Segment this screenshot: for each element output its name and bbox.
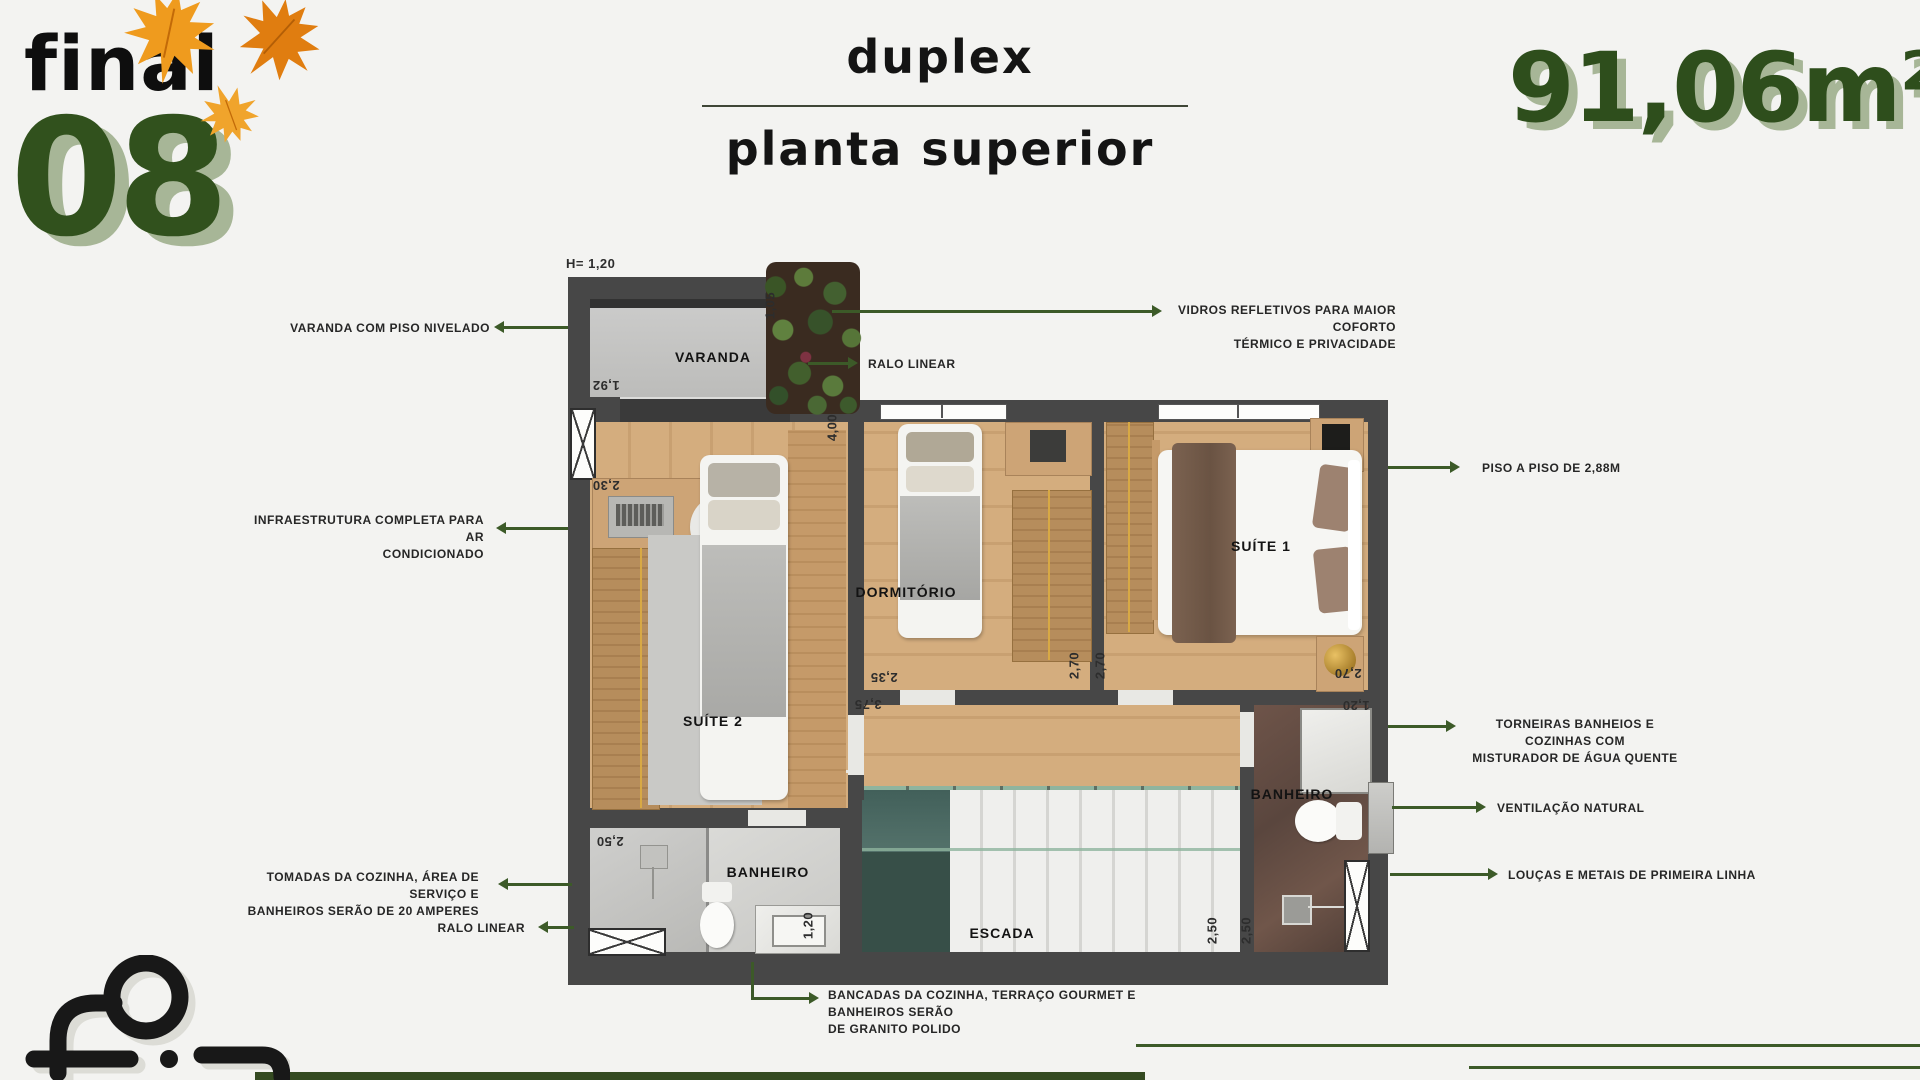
callout-arrow-line [808, 362, 850, 365]
arrow-left-icon [496, 522, 506, 534]
suite2-door-opening [848, 715, 864, 775]
bed-pillow [708, 500, 780, 530]
suite1-door-opening [1118, 690, 1173, 705]
callout-tomadas-line2: BANHEIROS SERÃO DE 20 AMPERES [248, 904, 479, 918]
poster-canvas: final 08 duplex planta superior 91,06m² … [0, 0, 1920, 1080]
dim-dorm-depth: 2,70 [1067, 646, 1082, 686]
wardrobe-rail [1048, 490, 1050, 660]
wardrobe-rail [1128, 422, 1130, 632]
room-label-dormitorio: DORMITÓRIO [850, 584, 962, 600]
callout-bancadas-line2: DE GRANITO POLIDO [828, 1022, 961, 1036]
callout-infra-line1: INFRAESTRUTURA COMPLETA PARA AR [254, 513, 484, 544]
bed-pillow-edge [1348, 460, 1360, 630]
banheiro1-door-opening [748, 810, 806, 826]
arrow-right-icon [1450, 461, 1460, 473]
banheiro2-shower-niche [1300, 708, 1372, 794]
laptop-icon [1030, 430, 1066, 462]
footer-rule-bottom [1469, 1066, 1920, 1069]
suite2-window [570, 408, 596, 480]
callout-arrow-line [502, 326, 568, 329]
dormitorio-door-opening [900, 690, 955, 705]
stairs-balustrade [862, 786, 1240, 790]
toilet-icon [700, 902, 734, 948]
callout-ralo-top: RALO LINEAR [868, 356, 998, 373]
room-label-escada: ESCADA [952, 925, 1052, 941]
callout-piso-a-piso: PISO A PISO DE 2,88M [1482, 460, 1762, 477]
arrow-left-icon [538, 921, 548, 933]
callout-arrow-line [1390, 873, 1490, 876]
toilet-tank [702, 882, 732, 902]
ventilation-shaft [1368, 782, 1394, 854]
sink-basin-icon [772, 915, 826, 947]
dim-banheiro1-depth: 1,20 [801, 906, 816, 946]
callout-arrow-line [751, 997, 811, 1000]
callout-tomadas: TOMADAS DA COZINHA, ÁREA DE SERVIÇO E BA… [235, 869, 479, 920]
dim-suite2-width: 2,30 [586, 478, 626, 493]
dim-suite2-length: 4,00 [825, 408, 840, 448]
dim-varanda-depth: 1,05 [763, 286, 778, 326]
planter-foliage [760, 258, 864, 418]
room-label-suite1: SUÍTE 1 [1208, 538, 1314, 554]
dormitorio-wardrobe [1012, 490, 1092, 662]
page-title: duplex [700, 30, 1180, 84]
callout-connector-vertical [751, 962, 754, 1000]
callout-arrow-line [504, 527, 568, 530]
dim-dormitorio-width: 2,35 [864, 670, 904, 685]
footer-rule-top [1136, 1044, 1920, 1047]
callout-infra-line2: CONDICIONADO [383, 547, 484, 561]
arrow-left-icon [498, 878, 508, 890]
arrow-right-icon [1488, 868, 1498, 880]
hall-floor [848, 705, 1240, 790]
arrow-right-icon [1152, 305, 1162, 317]
room-label-banheiro2: BANHEIRO [1236, 786, 1348, 802]
suite2-side-panel [788, 430, 846, 808]
toilet-icon [1295, 800, 1341, 842]
callout-arrow-line [1392, 806, 1478, 809]
arrow-right-icon [1476, 801, 1486, 813]
brand-logo-icon [18, 955, 290, 1080]
banheiro2-window [1344, 860, 1370, 952]
callout-vidros-line2: TÉRMICO E PRIVACIDADE [1234, 337, 1396, 351]
callout-vidros: VIDROS REFLETIVOS PARA MAIOR COFORTO TÉR… [1166, 302, 1396, 353]
banheiro1-window [588, 928, 666, 956]
footer-bar [255, 1072, 1145, 1080]
callout-arrow-line [832, 310, 1154, 313]
callout-vidros-line1: VIDROS REFLETIVOS PARA MAIOR COFORTO [1178, 303, 1396, 334]
bed-pillow [906, 466, 974, 492]
toilet-tank [1336, 802, 1362, 840]
callout-arrow-line [1388, 725, 1448, 728]
suite1-window [1158, 404, 1320, 420]
shower-head-icon [640, 845, 668, 869]
callout-arrow-line [1388, 466, 1452, 469]
callout-bancadas: BANCADAS DA COZINHA, TERRAÇO GOURMET E B… [828, 987, 1158, 1038]
dim-varanda-width: 1,92 [586, 378, 626, 393]
callout-torneiras-line1: TORNEIRAS BANHEIOS E COZINHAS COM [1496, 717, 1654, 748]
bed-pillow [906, 432, 974, 462]
wardrobe-rail [640, 548, 642, 808]
dim-stairs-width: 2,50 [1205, 911, 1220, 951]
dim-suite1-width: 2,70 [1328, 666, 1368, 681]
callout-infra: INFRAESTRUTURA COMPLETA PARA AR CONDICIO… [240, 512, 484, 563]
bed-pillow [708, 463, 780, 497]
dim-suite1-depth: 2,70 [1093, 646, 1108, 686]
unit-number: 08 [10, 98, 223, 260]
shower-head-stem [652, 867, 654, 899]
callout-loucas: LOUÇAS E METAIS DE PRIMEIRA LINHA [1508, 867, 1768, 884]
logo-dot [160, 1050, 178, 1068]
dim-hall-width: 3,75 [848, 697, 888, 712]
arrow-right-icon [809, 992, 819, 1004]
callout-ralo-bottom: RALO LINEAR [395, 920, 525, 937]
stairs-void [862, 852, 950, 952]
bed-blanket [702, 545, 786, 717]
dim-height-note: H= 1,20 [566, 256, 636, 271]
dormitorio-window [880, 404, 1007, 420]
room-label-varanda: VARANDA [658, 349, 768, 365]
arrow-right-icon [848, 357, 858, 369]
callout-tomadas-line1: TOMADAS DA COZINHA, ÁREA DE SERVIÇO E [267, 870, 479, 901]
dim-shower-width: 1,20 [1336, 698, 1376, 713]
laptop-keyboard [616, 504, 664, 526]
window-mullion [1237, 404, 1239, 418]
arrow-left-icon [494, 321, 504, 333]
callout-ventilacao: VENTILAÇÃO NATURAL [1497, 800, 1737, 817]
dim-banheiro2-width: 2,50 [1239, 911, 1254, 951]
callout-bancadas-line1: BANCADAS DA COZINHA, TERRAÇO GOURMET E B… [828, 988, 1136, 1019]
window-mullion [941, 404, 943, 418]
callout-arrow-line [506, 883, 572, 886]
arrow-right-icon [1446, 720, 1456, 732]
area-value: 91,06m² [1508, 40, 1920, 136]
callout-torneiras-line2: MISTURADOR DE ÁGUA QUENTE [1472, 751, 1677, 765]
callout-torneiras: TORNEIRAS BANHEIOS E COZINHAS COM MISTUR… [1462, 716, 1688, 767]
page-subtitle: planta superior [640, 122, 1240, 176]
room-label-suite2: SUÍTE 2 [658, 713, 768, 729]
stairs-glass-edge [862, 848, 1240, 851]
title-divider [702, 105, 1188, 107]
room-label-banheiro1: BANHEIRO [712, 864, 824, 880]
shower-drain-icon [1282, 895, 1312, 925]
dim-banheiro1-width: 2,50 [590, 834, 630, 849]
banheiro2-door-opening [1240, 712, 1254, 767]
suite1-wardrobe [1106, 422, 1154, 634]
wall-suite2-banheiro1 [568, 808, 858, 828]
wall-banheiro1-stairs [840, 808, 862, 985]
callout-varanda-piso: VARANDA COM PISO NIVELADO [250, 320, 490, 337]
callout-arrow-line [546, 926, 574, 929]
